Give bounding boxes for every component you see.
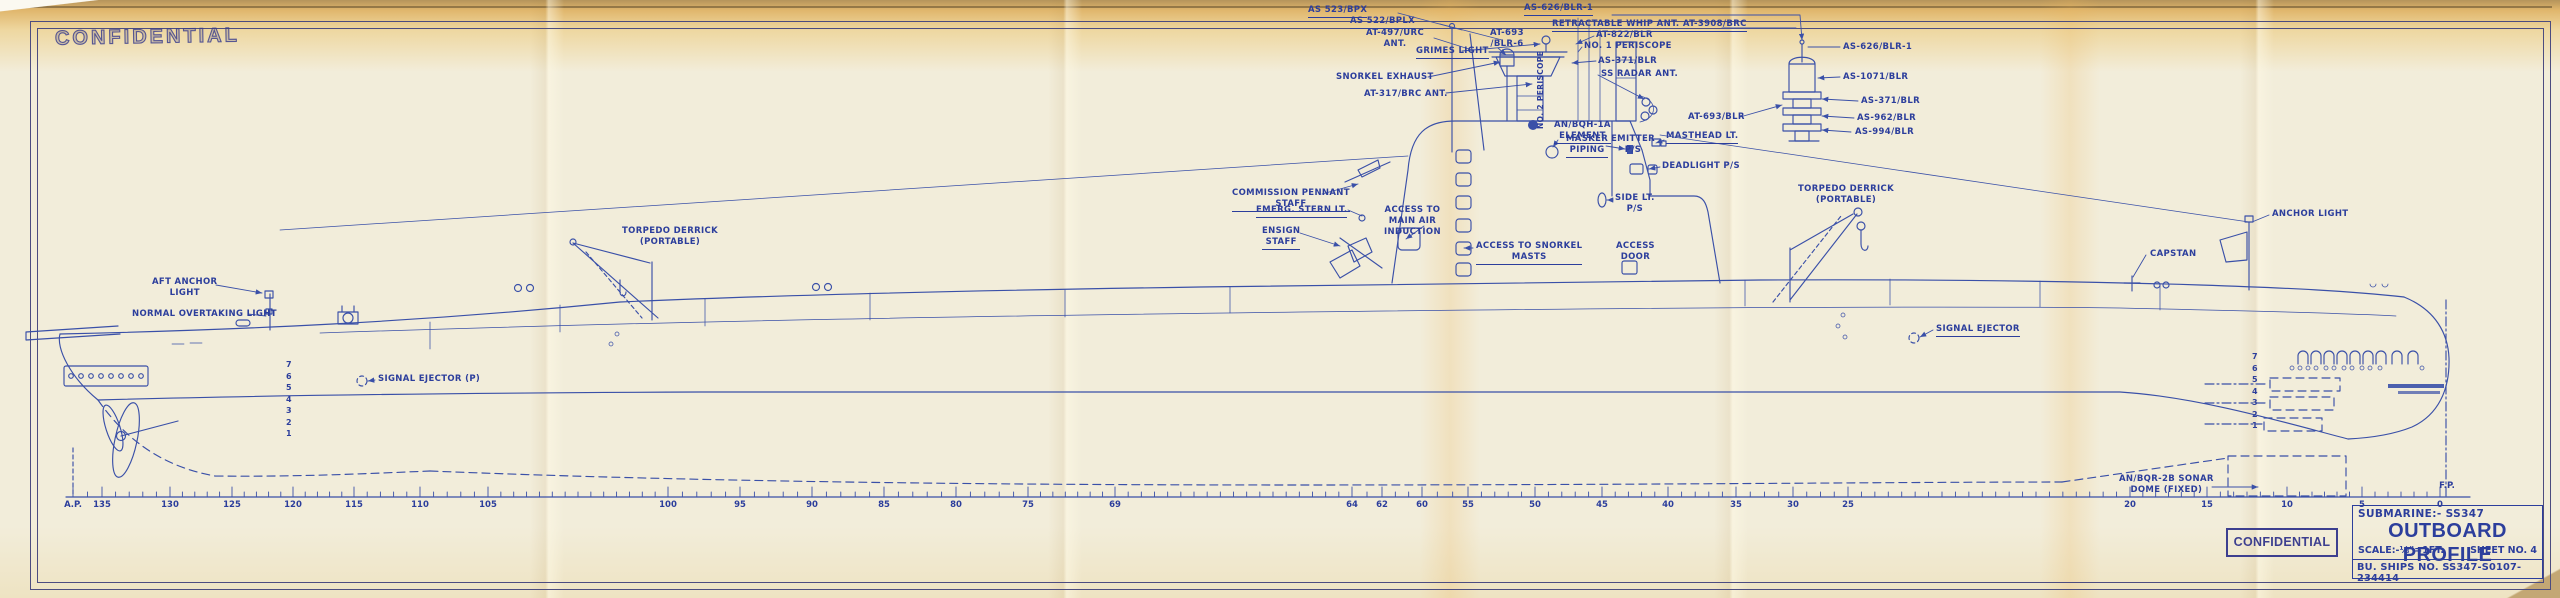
bow-detail (2124, 216, 2446, 497)
submarine-outboard-profile-drawing (0, 0, 2560, 598)
periscopes-and-masts (1450, 18, 1658, 152)
callout-leader-lines (216, 13, 2269, 487)
confidential-box-stamp: CONFIDENTIAL (2226, 528, 2338, 557)
title-block-divider (2353, 559, 2542, 560)
torpedo-derrick-forward (1773, 208, 1868, 339)
frame-ruler (66, 487, 2470, 497)
conning-tower (1392, 120, 1720, 283)
confidential-stamp: CONFIDENTIAL (55, 24, 240, 50)
title-block-drawing-number: BU. SHIPS NO. SS347-S0107-234414 (2357, 562, 2542, 584)
title-block: SUBMARINE:- SS347 OUTBOARD PROFILE SCALE… (2352, 505, 2543, 579)
stern-staffs (1330, 160, 1390, 278)
torpedo-derrick-aft (570, 239, 658, 346)
blueprint-sheet: AS 523/BPXAS 522/BPLXAT-497/URC ANT.GRIM… (0, 0, 2560, 598)
keel-and-sonar-dome (430, 456, 2346, 496)
title-block-sheet-number: SHEET NO. 4 (2470, 545, 2537, 556)
antenna-mast-detail (1783, 40, 1821, 141)
title-block-scale: SCALE:-⅛"=1FT. (2358, 545, 2444, 556)
ruler-ticks (73, 487, 2440, 497)
hull (59, 135, 2449, 439)
